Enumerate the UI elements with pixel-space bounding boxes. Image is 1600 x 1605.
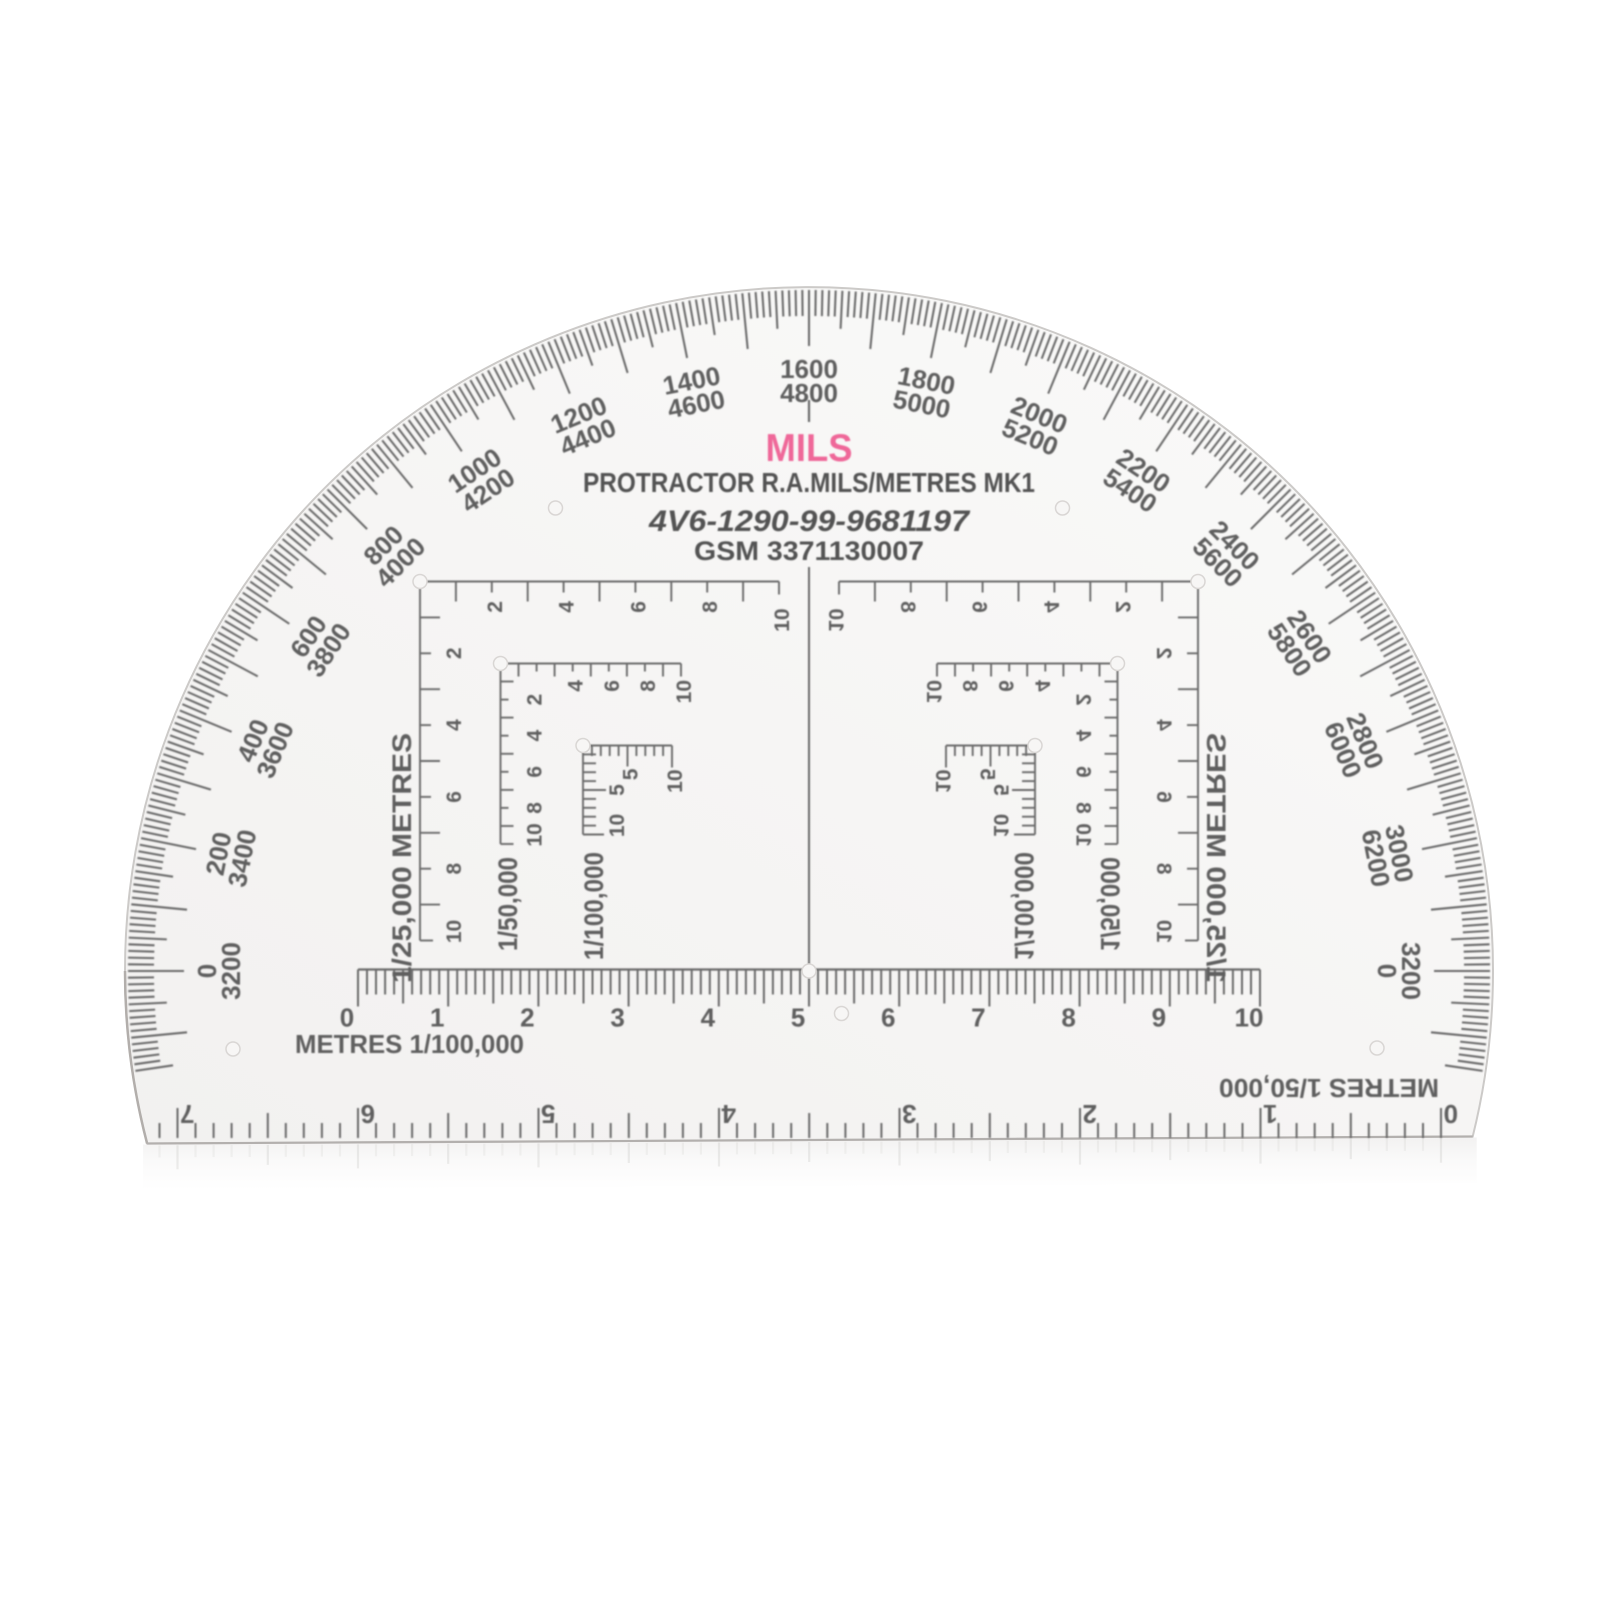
svg-text:8: 8 — [524, 802, 547, 814]
svg-text:10: 10 — [1235, 1003, 1264, 1033]
svg-text:10: 10 — [771, 609, 794, 632]
svg-text:2: 2 — [484, 601, 507, 613]
svg-text:4: 4 — [701, 1003, 716, 1033]
svg-text:1/50,000: 1/50,000 — [493, 857, 523, 951]
svg-text:2: 2 — [524, 694, 547, 706]
svg-text:3: 3 — [902, 1099, 916, 1129]
svg-text:GSM 3371130007: GSM 3371130007 — [694, 536, 924, 566]
svg-text:3: 3 — [610, 1003, 624, 1033]
svg-text:4: 4 — [556, 601, 579, 613]
svg-text:5: 5 — [541, 1099, 555, 1129]
svg-text:4: 4 — [721, 1099, 736, 1129]
svg-text:10: 10 — [673, 680, 696, 703]
svg-text:0: 0 — [1444, 1099, 1458, 1129]
svg-text:7: 7 — [180, 1099, 194, 1129]
svg-text:METRES 1/50,000: METRES 1/50,000 — [1219, 1073, 1439, 1103]
svg-text:4: 4 — [443, 719, 466, 731]
svg-text:4: 4 — [565, 680, 588, 692]
svg-text:0: 0 — [1372, 964, 1402, 978]
svg-text:8: 8 — [443, 863, 466, 875]
svg-text:0: 0 — [340, 1003, 354, 1033]
svg-text:3200: 3200 — [216, 942, 246, 1000]
svg-text:8: 8 — [637, 680, 660, 692]
svg-text:2: 2 — [520, 1003, 534, 1033]
svg-text:5: 5 — [620, 768, 643, 780]
svg-text:1/100,000: 1/100,000 — [579, 852, 609, 960]
svg-text:10: 10 — [524, 823, 547, 846]
svg-text:2: 2 — [1083, 1099, 1097, 1129]
svg-text:1/25,000 METRES: 1/25,000 METRES — [387, 733, 417, 983]
svg-text:6: 6 — [881, 1003, 895, 1033]
svg-text:6: 6 — [443, 791, 466, 803]
svg-text:5: 5 — [791, 1003, 805, 1033]
svg-text:6: 6 — [524, 766, 547, 778]
svg-text:7: 7 — [971, 1003, 985, 1033]
svg-text:5: 5 — [606, 784, 629, 796]
svg-text:PROTRACTOR R.A.MILS/METRES MK1: PROTRACTOR R.A.MILS/METRES MK1 — [583, 467, 1035, 498]
svg-text:6: 6 — [361, 1099, 375, 1129]
svg-text:4V6-1290-99-9681197: 4V6-1290-99-9681197 — [648, 505, 970, 538]
svg-text:8: 8 — [1061, 1003, 1075, 1033]
svg-text:6: 6 — [601, 680, 624, 692]
svg-text:10: 10 — [606, 814, 629, 837]
svg-text:10: 10 — [664, 770, 687, 793]
svg-text:10: 10 — [443, 920, 466, 943]
svg-text:1: 1 — [430, 1003, 444, 1033]
svg-text:METRES 1/100,000: METRES 1/100,000 — [295, 1029, 524, 1059]
svg-text:9: 9 — [1152, 1003, 1166, 1033]
svg-text:2: 2 — [443, 647, 466, 659]
svg-text:MILS: MILS — [766, 427, 853, 470]
svg-text:8: 8 — [699, 601, 722, 613]
svg-text:6: 6 — [627, 601, 650, 613]
svg-text:4: 4 — [524, 730, 547, 742]
